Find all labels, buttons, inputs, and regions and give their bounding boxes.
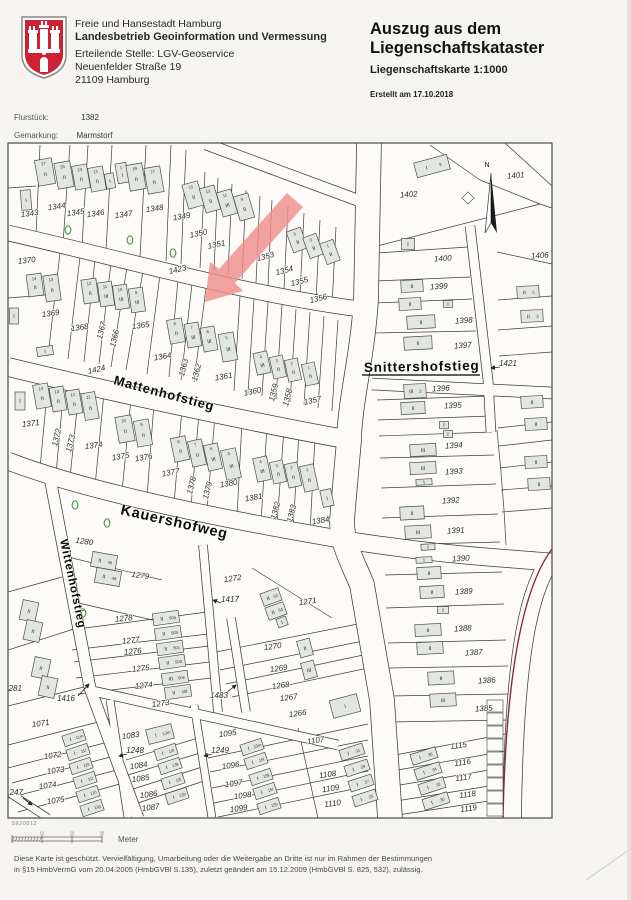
parcel-number: 1277 [121, 635, 140, 646]
parcel-number: 1421 [499, 359, 517, 368]
garage-row [487, 726, 503, 738]
svg-text:III: III [409, 389, 414, 395]
parcel-number: 1388 [454, 623, 473, 633]
svg-text:II: II [408, 302, 411, 308]
building: 12II [81, 278, 99, 304]
svg-text:II: II [419, 320, 422, 326]
svg-text:I: I [13, 314, 14, 320]
parcel-number: 1385 [475, 703, 494, 713]
scan-edge-shadow [627, 0, 631, 900]
svg-text:III: III [421, 448, 426, 454]
building: III2 [404, 383, 427, 398]
building: II [528, 477, 551, 490]
building: I [438, 607, 449, 615]
building: II5 [517, 285, 540, 298]
cadastral-map: 27II25II23II21III1I19II17II15II13II11III… [0, 0, 631, 900]
svg-text:III: III [104, 294, 109, 301]
parcel-number: 1396 [432, 384, 451, 394]
building: II [417, 641, 444, 654]
building: II [415, 623, 442, 636]
parcel-number: 1401 [507, 170, 526, 181]
svg-text:II: II [410, 511, 413, 517]
svg-text:II: II [534, 460, 537, 466]
parcel-number: 1389 [455, 586, 474, 596]
parcel-number: 1417 [221, 595, 239, 604]
svg-text:II: II [439, 676, 442, 682]
scale-unit: Meter [118, 835, 139, 844]
parcel-number: 1400 [434, 254, 453, 264]
building: 10III [112, 284, 129, 310]
building: II [400, 506, 425, 520]
building: III [405, 525, 432, 539]
svg-text:50d: 50d [175, 659, 183, 665]
svg-text:III: III [416, 530, 421, 536]
svg-text:III: III [421, 466, 426, 472]
scale-tick: 20 [70, 831, 75, 836]
parcel-number: 1274 [134, 680, 153, 691]
building: II [417, 566, 442, 579]
building: II [401, 401, 426, 414]
building: II [525, 417, 548, 430]
svg-text:II: II [530, 400, 533, 406]
building: 14II [26, 273, 44, 297]
building: II [420, 585, 445, 598]
building: I [440, 422, 449, 430]
svg-text:II: II [411, 406, 414, 412]
parcel-number: 1395 [444, 401, 463, 411]
parcel-number: 1391 [447, 525, 465, 535]
parcel-number: 1416 [57, 694, 75, 703]
parcel-number: 1394 [445, 440, 464, 450]
garage-row [487, 804, 503, 816]
building: I [15, 392, 25, 410]
svg-text:I: I [423, 480, 425, 486]
svg-text:I: I [447, 302, 448, 308]
parcel-number: 1393 [445, 466, 464, 476]
legal-notice: Diese Karte ist geschützt. Vervielfältig… [14, 854, 614, 875]
building: II [407, 315, 436, 329]
svg-text:II: II [523, 290, 526, 296]
svg-text:III: III [441, 698, 446, 704]
svg-text:II: II [537, 482, 540, 488]
svg-text:II: II [416, 341, 419, 347]
garage-row [487, 791, 503, 803]
garage-row [487, 752, 503, 764]
svg-text:II: II [410, 284, 413, 290]
svg-text:II: II [428, 646, 431, 652]
svg-text:50c: 50c [173, 645, 180, 651]
svg-text:50b: 50b [171, 630, 179, 636]
parcel-number: 1483 [210, 691, 228, 700]
building: II [401, 279, 424, 292]
parcel-number: 1275 [131, 663, 150, 674]
building: II [521, 395, 544, 408]
parcel-number: 1397 [454, 340, 473, 350]
svg-text:II: II [427, 571, 430, 577]
building: I [10, 308, 19, 324]
parcel-number: 1390 [452, 553, 471, 563]
building: II [399, 297, 422, 310]
parcel-number: 1392 [442, 495, 461, 505]
svg-text:N: N [484, 162, 489, 169]
building: II3 [521, 309, 544, 322]
svg-text:I: I [447, 432, 448, 438]
svg-text:III: III [168, 676, 173, 683]
svg-text:50e: 50e [178, 675, 186, 681]
svg-text:II: II [527, 314, 530, 320]
building: 11III [97, 281, 114, 307]
parcel-number: 1371 [21, 418, 40, 429]
building: I [36, 345, 53, 356]
svg-text:I: I [407, 242, 408, 248]
parcel-number: 1399 [430, 282, 449, 292]
parcel-number: 1386 [478, 675, 497, 685]
parcel-number: 1249 [211, 746, 229, 755]
svg-text:II: II [534, 422, 537, 428]
garage-row [487, 778, 503, 790]
building: II [428, 671, 455, 685]
svg-text:II: II [426, 628, 429, 634]
parcel-number: 1248 [126, 746, 144, 755]
svg-text:I: I [423, 558, 425, 564]
svg-text:I: I [19, 399, 20, 405]
building: I [444, 301, 453, 309]
building: I [20, 190, 32, 211]
parcel-number: 1278 [114, 613, 133, 624]
building: II [404, 336, 433, 350]
street-name: Snittershofstieg [364, 358, 480, 375]
garage-row [487, 739, 503, 751]
parcel-number: 1370 [17, 255, 36, 266]
svg-text:II: II [430, 590, 433, 596]
garage-row [487, 765, 503, 777]
building: III [430, 693, 457, 707]
building: 9III [128, 287, 145, 313]
building: II [525, 455, 548, 468]
scale-bar: 102030Meter [10, 830, 170, 848]
document-number: 5920812 [12, 821, 37, 827]
building: I [444, 431, 453, 439]
svg-text:I: I [443, 423, 444, 429]
building: 13II [43, 274, 61, 302]
building: III [410, 443, 437, 456]
svg-text:III: III [119, 297, 124, 304]
parcel-number: 1402 [400, 189, 419, 200]
building: III [410, 461, 437, 474]
garage-row [487, 713, 503, 725]
scale-tick: 10 [40, 831, 45, 836]
parcel-number: 1406 [531, 251, 550, 261]
building: I [402, 239, 415, 250]
parcel-number: 1398 [455, 315, 474, 325]
svg-text:I: I [442, 608, 443, 614]
document-page: Freie und Hansestadt Hamburg Landesbetri… [0, 0, 631, 900]
scale-tick: 30 [100, 831, 105, 836]
parcel-number: 1387 [465, 647, 484, 657]
svg-text:I: I [427, 545, 429, 551]
svg-text:III: III [135, 300, 140, 307]
parcel-number: 1281 [4, 684, 22, 693]
parcel-number: 1276 [123, 646, 142, 657]
svg-text:50a: 50a [169, 615, 177, 621]
